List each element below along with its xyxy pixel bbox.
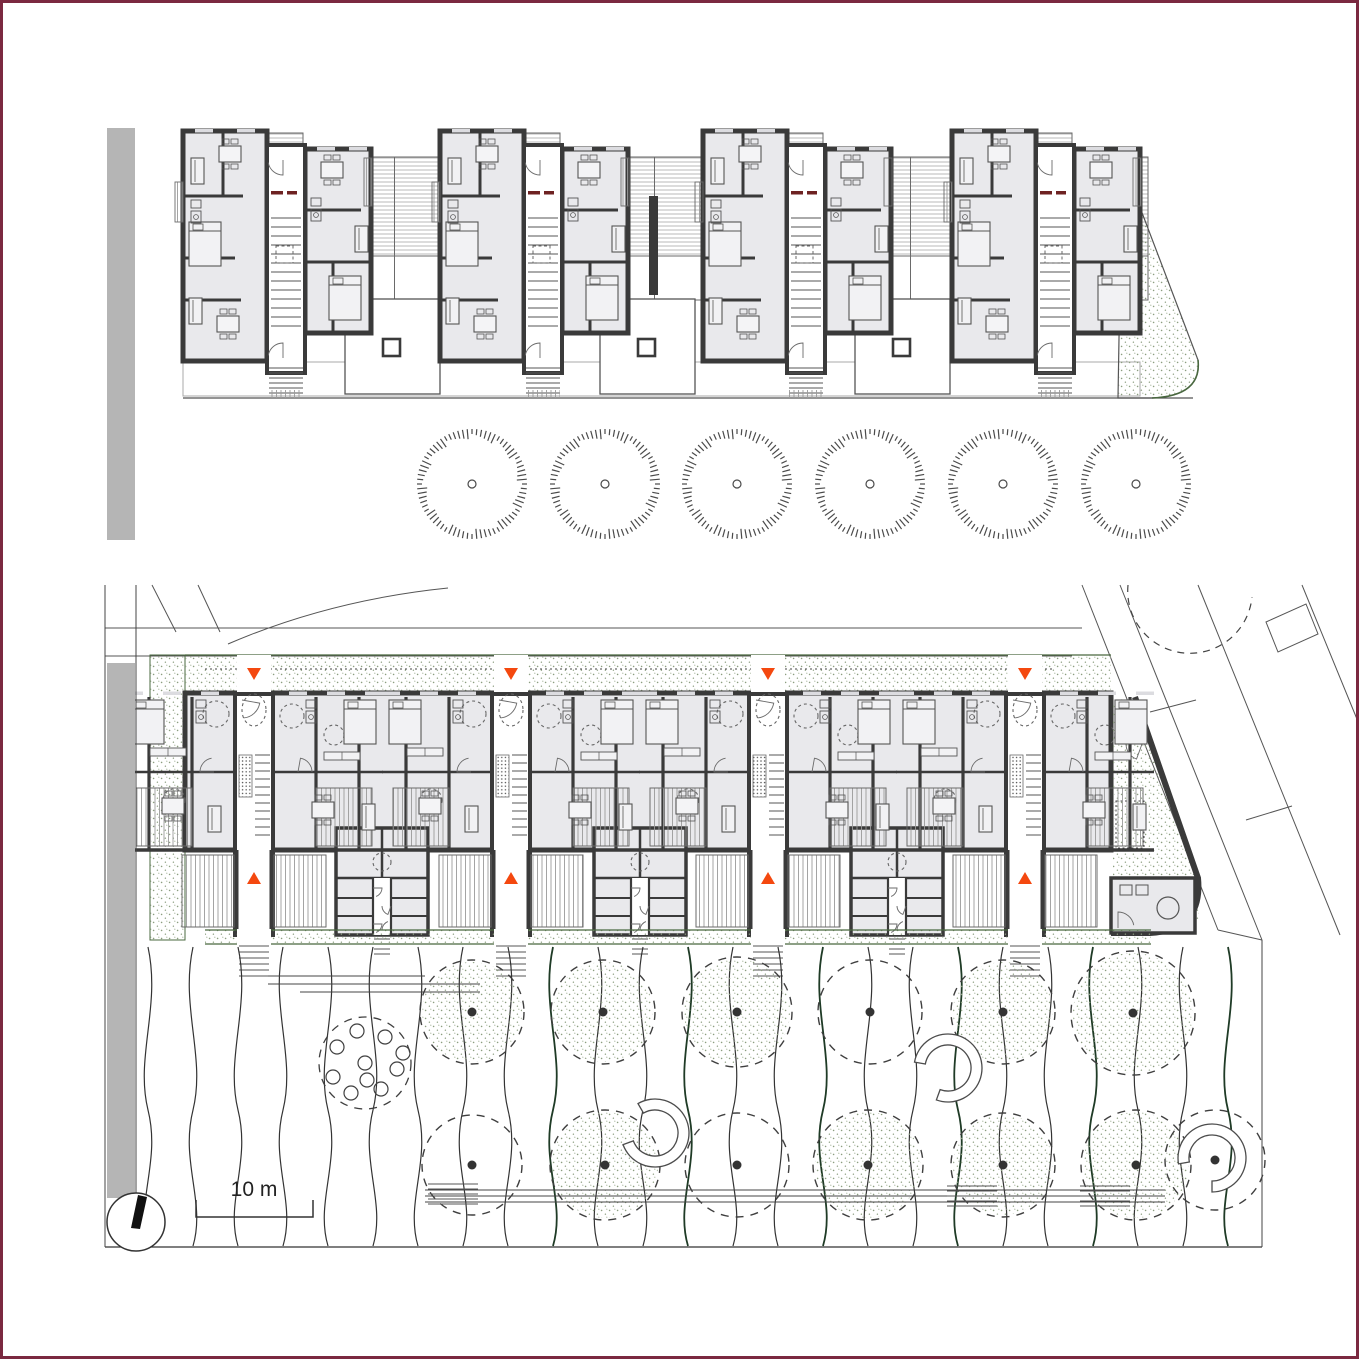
tree-tick	[895, 527, 898, 531]
tree-tick	[822, 457, 826, 460]
tree-tick	[1104, 524, 1107, 529]
tree-tick	[732, 533, 733, 539]
balcony	[621, 158, 629, 206]
tree-tick	[1126, 430, 1128, 439]
planting-wave	[1224, 947, 1232, 1246]
tree-tick	[430, 449, 435, 453]
tree-tick	[1097, 445, 1103, 451]
tree-tick	[1011, 430, 1012, 437]
tree-tick	[886, 432, 889, 440]
tree-tick	[519, 492, 526, 493]
bed	[586, 276, 618, 320]
tree-tick	[882, 529, 884, 537]
tree-tick	[851, 432, 853, 439]
tree-tick	[1029, 521, 1035, 529]
window	[452, 129, 470, 133]
tree-tick	[1144, 529, 1146, 538]
tree-tick	[777, 512, 782, 515]
tree-tick	[467, 533, 468, 539]
tree-tick	[517, 474, 526, 476]
tree-tick	[1179, 457, 1183, 460]
tree-tick	[493, 528, 496, 533]
sofa	[355, 226, 368, 252]
tree-tick	[874, 429, 875, 435]
roof-dark-bar	[649, 196, 658, 295]
tree-tick	[1144, 430, 1145, 437]
window	[622, 692, 640, 696]
tree-tick	[445, 436, 448, 440]
tree	[417, 429, 527, 539]
tree-tick	[648, 500, 656, 503]
skylight	[893, 339, 910, 356]
strip-gap	[751, 929, 785, 945]
tree-tick	[817, 470, 825, 472]
tree-tick	[822, 509, 826, 512]
tree-tick	[462, 430, 464, 439]
window	[757, 129, 775, 133]
window	[349, 147, 367, 151]
tree-tick	[955, 457, 959, 460]
tree-tick	[437, 521, 441, 526]
tree-tick	[838, 524, 841, 529]
tree-tick	[1181, 470, 1189, 472]
window	[289, 692, 307, 696]
canopy-trunk-dot	[601, 1161, 610, 1170]
deck-terrace	[136, 788, 192, 846]
tree-tick	[1011, 529, 1013, 538]
tree-tick	[509, 452, 517, 458]
skylight	[383, 339, 400, 356]
tree-tick	[1034, 442, 1038, 447]
deck-terrace	[393, 788, 449, 846]
tree-tick	[953, 461, 962, 465]
sofa	[960, 158, 973, 184]
tree-tick	[831, 445, 837, 451]
step-hatch	[1038, 390, 1072, 398]
bed	[1098, 276, 1130, 320]
path-edge	[198, 585, 220, 632]
path-edge	[152, 585, 176, 632]
tree-tick	[570, 442, 576, 449]
tree-tick	[980, 434, 983, 439]
bed	[446, 222, 478, 266]
tree-tick	[976, 527, 979, 531]
strip-gap	[494, 929, 528, 945]
tree-tick	[913, 500, 921, 503]
tree-tick	[1015, 431, 1017, 439]
tree-tick	[648, 457, 652, 460]
tree-tick	[552, 496, 560, 498]
tree-tick	[553, 465, 561, 468]
tree-tick	[1046, 457, 1050, 460]
stair-core	[524, 145, 562, 373]
tree-tick	[692, 510, 700, 516]
scale-bar: 10 m	[231, 1178, 278, 1201]
tree-tick	[1091, 452, 1096, 455]
south-terrace	[696, 855, 748, 927]
tree-tick	[1173, 515, 1178, 519]
tree-tick	[555, 461, 564, 465]
tree-tick	[903, 445, 909, 451]
kitchen-counter	[528, 191, 540, 195]
tree-tick	[1181, 474, 1190, 476]
table	[419, 798, 441, 814]
canopy-trunk-dot	[1129, 1009, 1138, 1018]
tree-tick	[695, 514, 702, 520]
tree-tick	[874, 529, 875, 539]
tree-tick	[1140, 429, 1141, 435]
tree-tick	[600, 533, 601, 539]
core-exit-corridor	[237, 850, 271, 935]
tree-tick	[815, 479, 821, 480]
tree-tick	[591, 431, 593, 439]
tree-tick	[968, 521, 972, 526]
tree-tick	[1048, 474, 1057, 476]
window	[677, 692, 695, 696]
tree-tick	[856, 529, 858, 537]
tree-tick	[784, 492, 791, 493]
bed	[709, 222, 741, 266]
tree-tick	[1019, 432, 1022, 440]
tree-tick	[624, 434, 628, 443]
bulb-bed-dashed	[319, 1017, 411, 1109]
table	[988, 146, 1010, 162]
window	[841, 692, 859, 696]
strip-gap	[237, 929, 271, 945]
canopy-trunk-dot	[1132, 1161, 1141, 1170]
bed	[344, 700, 376, 744]
canopy-trunk-dot	[999, 1008, 1008, 1017]
tree-tick	[503, 442, 507, 447]
tree-tick	[782, 479, 792, 480]
tree-tick	[497, 436, 500, 440]
tree-tick	[417, 479, 423, 480]
tree-tick	[782, 470, 790, 472]
tree-tick	[976, 436, 979, 440]
tree-tick	[573, 439, 579, 447]
tree-tick	[553, 500, 560, 502]
tree-tick	[445, 527, 448, 531]
table	[219, 146, 241, 162]
bed	[858, 700, 890, 744]
bulb	[358, 1056, 372, 1070]
bulb	[360, 1073, 374, 1087]
tree-tick	[488, 432, 491, 440]
tree-tick	[578, 436, 581, 440]
tree-tick	[458, 431, 460, 439]
tree-tick	[1166, 519, 1172, 526]
tree-tick	[993, 430, 995, 439]
tree-trunk	[1132, 480, 1140, 488]
window	[606, 147, 624, 151]
tree-tick	[989, 529, 991, 537]
tree-tick	[758, 528, 761, 533]
tree-tick	[505, 445, 511, 451]
tree-tick	[948, 479, 954, 480]
tree-tick	[756, 434, 760, 443]
balcony	[695, 182, 703, 222]
balcony	[1133, 158, 1141, 206]
window	[639, 692, 657, 696]
tree-tick	[517, 496, 525, 498]
tree-tick	[860, 531, 861, 538]
tree-tick	[650, 465, 657, 467]
tree-tick	[714, 525, 718, 534]
tree-tick	[953, 505, 958, 508]
tree-tick	[650, 479, 660, 480]
tree-tick	[685, 465, 693, 468]
tree-tick	[687, 505, 692, 508]
tree-tick	[488, 529, 490, 536]
sofa	[208, 806, 221, 832]
tree-tick	[1047, 461, 1052, 464]
tree-tick	[517, 465, 524, 467]
tree-tick	[513, 503, 522, 507]
table	[312, 802, 334, 818]
table	[474, 316, 496, 332]
tree-tick	[1048, 470, 1056, 472]
tree-tick	[951, 465, 959, 468]
tree-tick	[980, 525, 984, 534]
tree-tick	[1152, 529, 1154, 536]
window	[869, 147, 887, 151]
bulb	[390, 1062, 404, 1076]
bulb	[326, 1070, 340, 1084]
tree-tick	[476, 429, 477, 435]
sofa	[1124, 226, 1137, 252]
tree-tick	[993, 531, 994, 538]
scale-bar-bracket	[196, 1200, 313, 1217]
site-diagonal	[1302, 585, 1359, 724]
bulb	[350, 1024, 364, 1038]
tree-tick	[778, 503, 787, 507]
table	[737, 316, 759, 332]
tree-tick	[595, 531, 596, 538]
tree-tick	[517, 479, 527, 480]
tree-tick	[910, 512, 915, 515]
street-band	[107, 128, 135, 540]
tree-tick	[1131, 429, 1132, 439]
tree-tick	[689, 457, 693, 460]
tree-tick	[476, 529, 477, 539]
tree-tick	[1181, 465, 1188, 467]
tree-tick	[453, 527, 456, 535]
tree-tick	[762, 436, 765, 440]
tree-tick	[915, 479, 925, 480]
tree-tick	[458, 529, 460, 537]
table	[578, 162, 600, 178]
tree-tick	[630, 436, 633, 440]
tree-tick	[900, 519, 906, 526]
sofa	[958, 298, 971, 324]
tree-tick	[586, 527, 589, 535]
tree-tick	[570, 521, 574, 526]
tree-tick	[1176, 512, 1181, 515]
table	[1090, 162, 1112, 178]
tree-tick	[1038, 449, 1045, 455]
tree-tick	[515, 457, 519, 460]
tree-tick	[582, 525, 586, 534]
tree-tick	[419, 470, 427, 472]
tree-tick	[710, 527, 713, 531]
tree-tick	[420, 465, 428, 468]
step-hatch	[526, 390, 560, 398]
tree-tick	[989, 431, 991, 439]
tree-tick	[642, 515, 647, 519]
window	[163, 692, 181, 696]
tree-tick	[609, 429, 610, 435]
south-terrace	[1045, 855, 1097, 927]
kitchen-counter	[271, 191, 283, 195]
tree-tick	[1181, 479, 1191, 480]
tree-tick	[1084, 465, 1092, 468]
window	[1098, 692, 1116, 696]
tree-tick	[687, 461, 696, 465]
tree-tick	[417, 488, 427, 489]
tree-tick	[816, 474, 823, 475]
tree-tick	[449, 525, 453, 534]
tree-tick	[1094, 449, 1099, 453]
window	[1006, 129, 1024, 133]
bed	[389, 700, 421, 744]
tree-tick	[449, 434, 452, 439]
tree-tick	[517, 470, 525, 472]
tree-tick	[889, 434, 893, 443]
window	[574, 147, 592, 151]
tree-tick	[609, 529, 610, 539]
table	[476, 146, 498, 162]
balcony	[884, 158, 892, 206]
tree-canopy	[818, 960, 922, 1064]
tree-tick	[509, 515, 514, 519]
tree-tick	[507, 449, 514, 455]
tree-tick	[491, 434, 495, 443]
tree	[1081, 429, 1191, 539]
south-terrace	[788, 855, 840, 927]
tree-tick	[818, 500, 825, 502]
tree-tick	[847, 525, 851, 534]
tree-trunk	[468, 480, 476, 488]
tree-tick	[1088, 509, 1092, 512]
tree-tick	[505, 517, 511, 523]
tree-tick	[782, 496, 790, 498]
tree-tick	[613, 430, 614, 437]
tree-tick	[828, 514, 835, 520]
window	[382, 692, 400, 696]
table	[676, 798, 698, 814]
balcony	[364, 158, 372, 206]
tree-trunk	[733, 480, 741, 488]
canopy-trunk-dot	[733, 1161, 742, 1170]
tree-tick	[1048, 465, 1055, 467]
sofa	[711, 158, 724, 184]
tree-tick	[984, 527, 987, 535]
tree-tick	[638, 445, 644, 451]
tree-tick	[917, 492, 924, 493]
tree-tick	[843, 527, 846, 531]
deck-terrace	[907, 788, 963, 846]
street-tree-row	[417, 429, 1191, 539]
tree-tick	[1033, 519, 1039, 526]
kitchen-counter	[1056, 191, 1066, 195]
bed	[601, 700, 633, 744]
tree-tick	[698, 517, 704, 523]
window	[964, 129, 982, 133]
window	[972, 692, 990, 696]
tree-tick	[1036, 517, 1042, 523]
tree-tick	[1019, 529, 1021, 536]
kitchen-counter	[807, 191, 817, 195]
tree-tick	[600, 429, 601, 439]
tree-tick	[1086, 505, 1091, 508]
ground-floor-site-plan	[105, 585, 1359, 1198]
tree-tick	[828, 449, 833, 453]
tree-tick	[1036, 445, 1042, 451]
tree-tick	[1113, 434, 1116, 439]
tree-tick	[964, 517, 970, 523]
tree-tick	[1152, 432, 1155, 440]
table	[986, 316, 1008, 332]
window	[584, 692, 602, 696]
tree-tick	[780, 509, 784, 512]
tree-tick	[958, 510, 966, 516]
table	[569, 802, 591, 818]
tree-tick	[1122, 431, 1124, 439]
table	[826, 802, 848, 818]
tree-trunk	[866, 480, 874, 488]
site-connector	[1150, 700, 1196, 712]
tree-tick	[767, 519, 773, 526]
tree-tick	[825, 510, 833, 516]
tree-trunk	[601, 480, 609, 488]
annotations: 10 m	[107, 1178, 313, 1251]
tree-tick	[878, 529, 880, 538]
tree-tick	[1007, 429, 1008, 435]
table	[162, 798, 184, 814]
tree-tick	[749, 431, 751, 439]
tree-tick	[786, 488, 792, 489]
tree-tick	[955, 509, 959, 512]
tree-tick	[633, 439, 636, 444]
tree-tick	[948, 488, 958, 489]
tree-tick	[498, 521, 504, 529]
path-edge	[228, 588, 448, 644]
tree-tick	[753, 432, 756, 440]
skylight	[638, 339, 655, 356]
tree-tick	[586, 432, 588, 439]
window	[195, 129, 213, 133]
tree-tick	[684, 470, 692, 472]
tree-tick	[563, 514, 570, 520]
tree	[948, 429, 1058, 539]
tree-tick	[521, 488, 527, 489]
tree-tick	[950, 496, 958, 498]
sofa	[722, 806, 735, 832]
tree-tick	[1082, 492, 1091, 494]
site-connector	[1218, 930, 1262, 940]
window	[420, 692, 438, 696]
tree-tick	[772, 449, 779, 455]
sofa	[709, 298, 722, 324]
tree-tick	[968, 442, 974, 449]
balcony	[944, 182, 952, 222]
sofa	[362, 804, 375, 830]
tree-tick	[1157, 528, 1160, 533]
tree-tick	[1028, 527, 1031, 531]
tree-tick	[645, 512, 650, 515]
tree-tick	[896, 521, 902, 529]
tree-tick	[1024, 528, 1027, 533]
